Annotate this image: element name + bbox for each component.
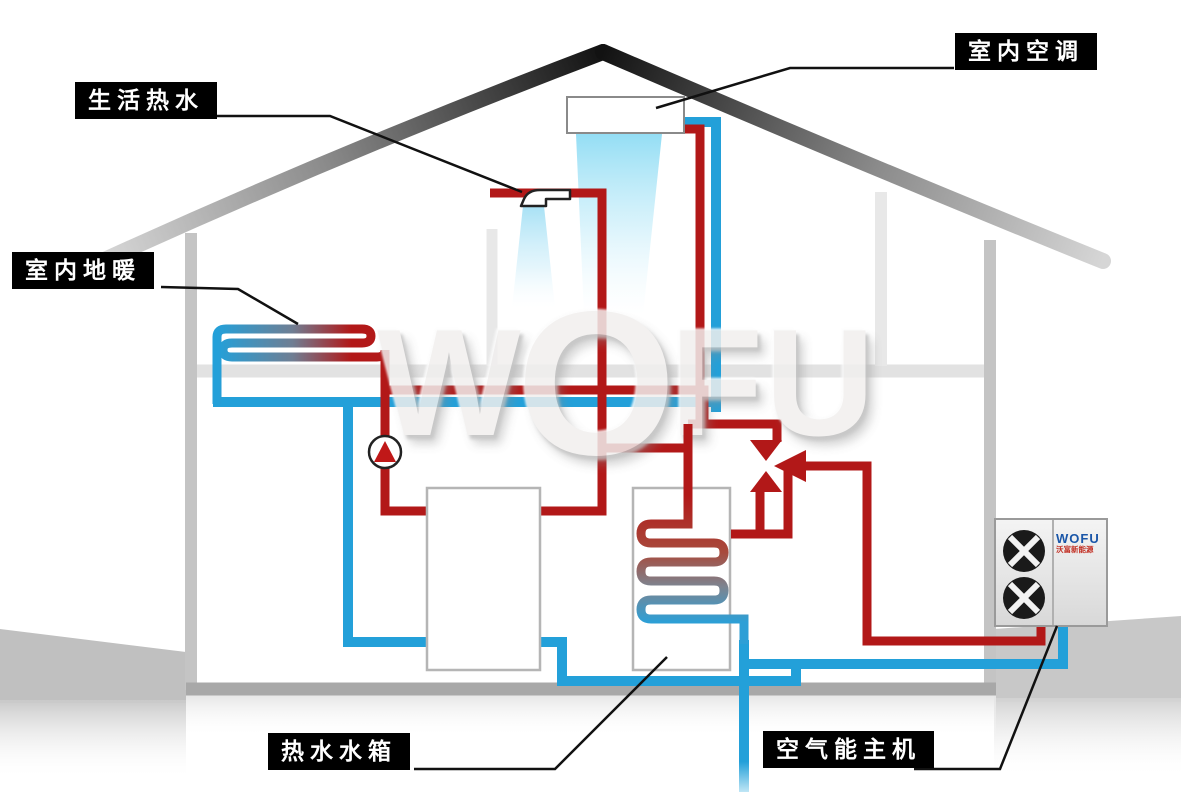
outdoor-unit <box>995 519 1107 626</box>
fan-icon-bottom <box>1003 577 1045 619</box>
three-way-valve-icon <box>750 440 806 492</box>
label-heat-pump-unit: 空气能主机 <box>763 731 934 768</box>
fan-icon-top <box>1003 530 1045 572</box>
leader-hot-water-tank <box>414 657 667 769</box>
label-floor-heating: 室内地暖 <box>12 252 154 289</box>
leader-floor-heating <box>161 287 298 324</box>
equipment-layer <box>0 0 1181 804</box>
buffer-tank <box>427 488 540 670</box>
valve-piping <box>731 466 788 534</box>
leader-heat-pump-unit <box>914 626 1057 769</box>
leader-lines <box>161 68 1057 769</box>
label-hot-water-tank: 热水水箱 <box>268 733 410 770</box>
leader-indoor-ac <box>656 68 954 108</box>
pump-icon <box>369 436 401 468</box>
valve-arrow-down <box>750 440 782 461</box>
leader-domestic-hot-water <box>201 116 522 192</box>
label-domestic-hot-water: 生活热水 <box>75 82 217 119</box>
diagram-canvas: W O F U <box>0 0 1181 804</box>
label-indoor-ac: 室内空调 <box>955 33 1097 70</box>
valve-arrow-up <box>750 471 782 492</box>
